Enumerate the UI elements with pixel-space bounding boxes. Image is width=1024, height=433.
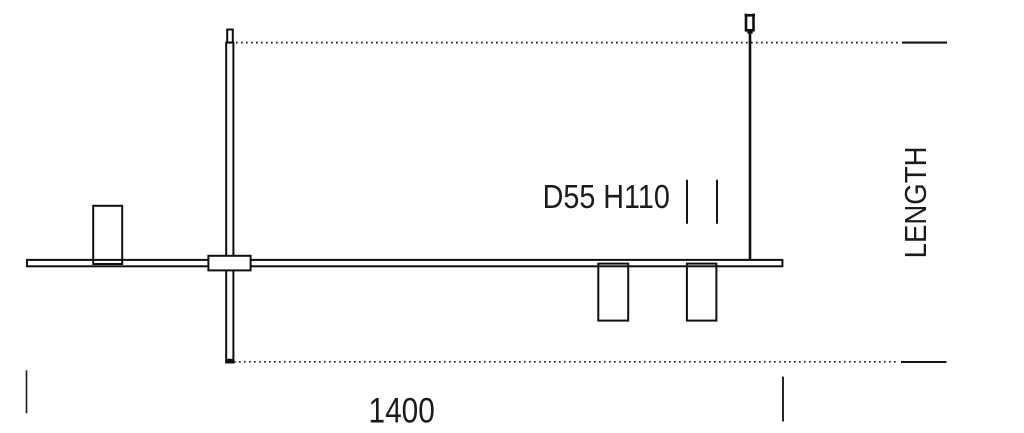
svg-text:LENGTH: LENGTH <box>900 146 934 258</box>
svg-text:1400: 1400 <box>369 390 435 430</box>
svg-text:D55 H110: D55 H110 <box>543 178 670 215</box>
